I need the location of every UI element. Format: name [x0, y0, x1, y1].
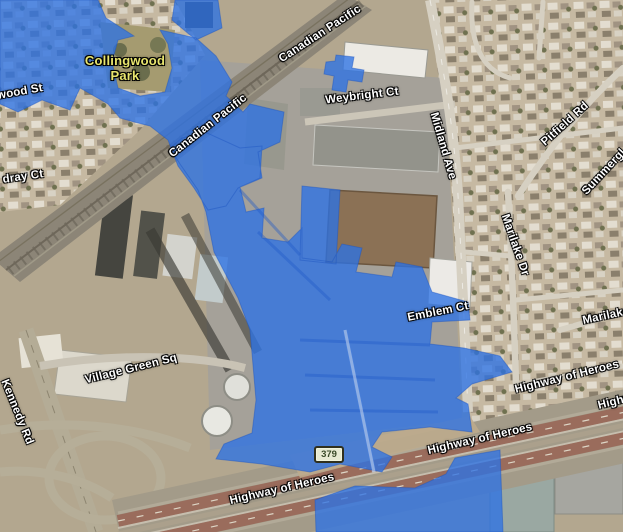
map-canvas[interactable]: Collingwood Park wood St dray Ct Canadia… — [0, 0, 623, 532]
satellite-imagery — [0, 0, 623, 532]
